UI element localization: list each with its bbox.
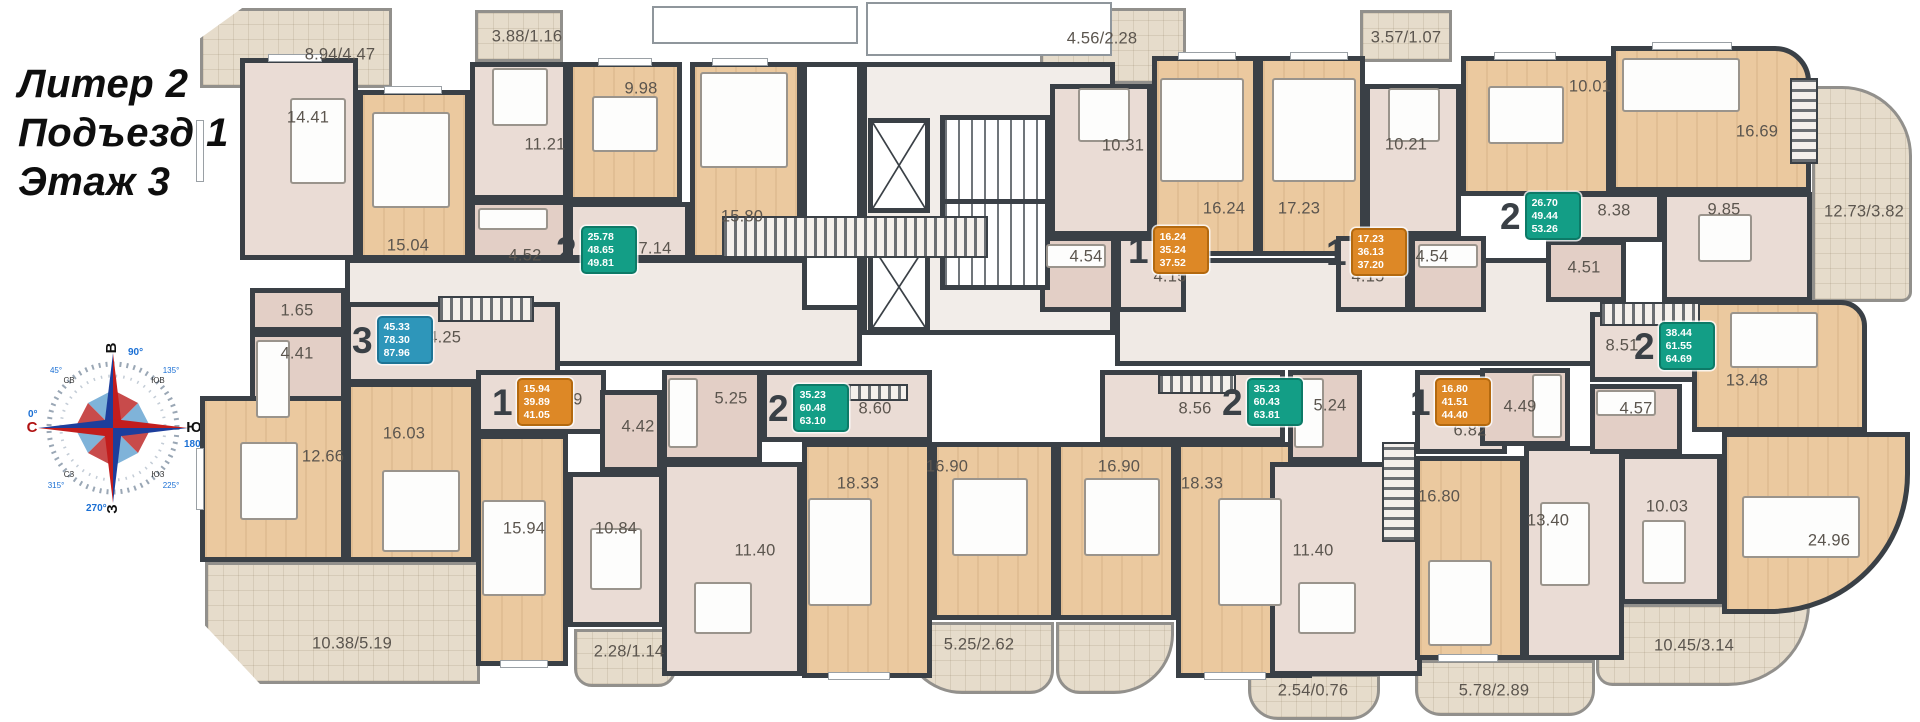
area-label: 5.25 bbox=[715, 390, 748, 409]
floor-plan: Литер 2 Подъезд 1 Этаж 3 В Ю З С 90° 180… bbox=[0, 0, 1920, 722]
area-label: 7.14 bbox=[639, 240, 672, 259]
apartment-rooms-count: 1 bbox=[1410, 384, 1431, 421]
area-label: 8.38 bbox=[1598, 202, 1631, 221]
area-label: 16.80 bbox=[1418, 488, 1460, 507]
apartment-badge-a9[interactable]: 2 35.23 60.43 63.81 bbox=[1222, 378, 1303, 426]
area-label: 10.21 bbox=[1385, 136, 1427, 155]
window bbox=[712, 58, 768, 66]
room bbox=[662, 462, 802, 676]
total-area-with-balcony: 63.81 bbox=[1254, 409, 1296, 422]
total-area: 60.48 bbox=[800, 402, 842, 415]
area-label: 10.01 bbox=[1569, 78, 1611, 97]
compass-south-label: Ю bbox=[186, 419, 200, 436]
total-area-with-balcony: 64.69 bbox=[1666, 353, 1708, 366]
apartment-areas: 17.23 36.13 37.20 bbox=[1351, 228, 1407, 276]
window bbox=[1438, 654, 1498, 662]
window bbox=[598, 58, 652, 66]
apartment-badge-a4[interactable]: 1 17.23 36.13 37.20 bbox=[1326, 228, 1407, 276]
area-label: 16.03 bbox=[383, 425, 425, 444]
apartment-badge-a6[interactable]: 2 38.44 61.55 64.69 bbox=[1634, 322, 1715, 370]
furniture bbox=[592, 96, 658, 152]
title-building: Литер 2 bbox=[18, 60, 229, 109]
total-area: 49.44 bbox=[1532, 210, 1574, 223]
title-floor: Этаж 3 bbox=[18, 158, 229, 207]
furniture bbox=[1388, 88, 1440, 142]
living-area: 26.70 bbox=[1532, 197, 1574, 210]
wardrobe bbox=[1382, 442, 1416, 542]
wardrobe bbox=[1790, 78, 1818, 164]
window bbox=[500, 660, 548, 668]
apartment-rooms-count: 2 bbox=[1222, 384, 1243, 421]
furniture bbox=[1428, 560, 1492, 646]
compass-270-label: 270° bbox=[86, 503, 107, 514]
compass-315-label: 315° bbox=[48, 481, 65, 490]
area-label: 9.85 bbox=[1708, 201, 1741, 220]
title-entrance: Подъезд 1 bbox=[18, 109, 229, 158]
apartment-areas: 45.33 78.30 87.96 bbox=[377, 316, 433, 364]
area-label: 2.28/1.14 bbox=[594, 643, 665, 662]
apartment-areas: 35.23 60.48 63.10 bbox=[793, 384, 849, 432]
terrace bbox=[1812, 86, 1912, 302]
furniture bbox=[1622, 58, 1740, 112]
furniture bbox=[1298, 582, 1356, 634]
area-label: 11.40 bbox=[1292, 542, 1333, 561]
area-label: 15.80 bbox=[721, 208, 763, 227]
window bbox=[384, 86, 442, 94]
total-area-with-balcony: 49.81 bbox=[588, 257, 630, 270]
area-label: 12.73/3.82 bbox=[1824, 203, 1904, 222]
area-label: 8.94/4.47 bbox=[305, 46, 376, 65]
total-area: 78.30 bbox=[384, 334, 426, 347]
living-area: 25.78 bbox=[588, 231, 630, 244]
apartment-rooms-count: 2 bbox=[1634, 328, 1655, 365]
apartment-badge-a10[interactable]: 1 16.80 41.51 44.40 bbox=[1410, 378, 1491, 426]
balcony bbox=[1056, 622, 1174, 694]
apartment-badge-a8[interactable]: 2 35.23 60.48 63.10 bbox=[768, 384, 849, 432]
area-label: 5.78/2.89 bbox=[1459, 682, 1530, 701]
total-area-with-balcony: 37.52 bbox=[1160, 257, 1202, 270]
living-area: 17.23 bbox=[1358, 233, 1400, 246]
living-area: 35.23 bbox=[1254, 383, 1296, 396]
area-label: 15.94 bbox=[503, 520, 545, 539]
area-label: 12.66 bbox=[302, 448, 344, 467]
apartment-areas: 16.24 35.24 37.52 bbox=[1153, 226, 1209, 274]
area-label: 10.84 bbox=[595, 520, 637, 539]
compass-135-label: 135° bbox=[163, 366, 180, 375]
apartment-rooms-count: 2 bbox=[768, 390, 789, 427]
living-area: 16.24 bbox=[1160, 231, 1202, 244]
total-area: 36.13 bbox=[1358, 246, 1400, 259]
furniture bbox=[1218, 498, 1282, 606]
area-label: 10.45/3.14 bbox=[1654, 637, 1734, 656]
living-area: 38.44 bbox=[1666, 327, 1708, 340]
total-area: 41.51 bbox=[1442, 396, 1484, 409]
elevator-shaft-1 bbox=[868, 118, 930, 213]
apartment-areas: 35.23 60.43 63.81 bbox=[1247, 378, 1303, 426]
area-label: 5.25/2.62 bbox=[944, 636, 1015, 655]
compass-rose: В Ю З С 90° 180° 270° 0° СВ ЮВ ЮЗ СЗ 45°… bbox=[26, 341, 200, 515]
area-label: 16.69 bbox=[1736, 123, 1778, 142]
area-label: 4.41 bbox=[281, 345, 314, 364]
furniture bbox=[694, 582, 752, 634]
area-label: 4.56/2.28 bbox=[1067, 30, 1138, 49]
total-area-with-balcony: 63.10 bbox=[800, 415, 842, 428]
plan-title: Литер 2 Подъезд 1 Этаж 3 bbox=[18, 60, 229, 207]
wardrobe bbox=[846, 384, 908, 401]
apartment-rooms-count: 2 bbox=[1500, 198, 1521, 235]
total-area: 35.24 bbox=[1160, 244, 1202, 257]
area-label: 10.38/5.19 bbox=[312, 635, 392, 654]
furniture bbox=[1272, 78, 1356, 182]
apartment-areas: 16.80 41.51 44.40 bbox=[1435, 378, 1491, 426]
canopy-outline bbox=[652, 6, 858, 44]
total-area-with-balcony: 41.05 bbox=[524, 409, 566, 422]
furniture bbox=[1084, 478, 1160, 556]
furniture bbox=[372, 112, 450, 208]
area-label: 8.56 bbox=[1179, 400, 1212, 419]
area-label: 17.23 bbox=[1278, 200, 1320, 219]
area-label: 1.65 bbox=[281, 302, 314, 321]
window bbox=[1204, 672, 1266, 680]
area-label: 11.40 bbox=[734, 542, 775, 561]
area-label: 8.60 bbox=[859, 400, 892, 419]
apartment-areas: 15.94 39.89 41.05 bbox=[517, 378, 573, 426]
living-area: 45.33 bbox=[384, 321, 426, 334]
compass-east-label: В bbox=[103, 342, 120, 353]
bathtub bbox=[478, 208, 548, 230]
total-area-with-balcony: 87.96 bbox=[384, 347, 426, 360]
total-area: 60.43 bbox=[1254, 396, 1296, 409]
total-area: 48.65 bbox=[588, 244, 630, 257]
compass-ne-label: СВ bbox=[63, 376, 74, 385]
area-label: 13.48 bbox=[1726, 372, 1768, 391]
area-label: 24.96 bbox=[1808, 532, 1850, 551]
area-label: 11.21 bbox=[524, 136, 565, 155]
apartment-badge-a7[interactable]: 1 15.94 39.89 41.05 bbox=[492, 378, 573, 426]
total-area-with-balcony: 37.20 bbox=[1358, 259, 1400, 272]
furniture bbox=[808, 498, 872, 606]
stairs bbox=[940, 115, 1050, 290]
area-label: 18.33 bbox=[1181, 475, 1223, 494]
furniture bbox=[1642, 520, 1686, 584]
furniture bbox=[240, 442, 298, 520]
apartment-areas: 26.70 49.44 53.26 bbox=[1525, 192, 1581, 240]
compass-225-label: 225° bbox=[163, 481, 180, 490]
total-area: 39.89 bbox=[524, 396, 566, 409]
area-label: 10.31 bbox=[1102, 137, 1144, 156]
living-area: 35.23 bbox=[800, 389, 842, 402]
area-label: 4.51 bbox=[1568, 259, 1601, 278]
compass-se-label: ЮВ bbox=[151, 376, 164, 385]
area-label: 13.40 bbox=[1527, 512, 1569, 531]
apartment-badge-a1[interactable]: 2 25.78 48.65 49.81 bbox=[556, 226, 637, 274]
bathtub bbox=[1532, 374, 1562, 438]
area-label: 5.24 bbox=[1314, 397, 1347, 416]
compass-nw-label: СЗ bbox=[64, 470, 75, 479]
area-label: 9.98 bbox=[625, 80, 658, 99]
furniture bbox=[1730, 312, 1818, 368]
apartment-badge-a5[interactable]: 2 26.70 49.44 53.26 bbox=[1500, 192, 1581, 240]
area-label: 4.52 bbox=[509, 247, 542, 266]
compass-180-label: 180° bbox=[184, 439, 200, 450]
apartment-rooms-count: 1 bbox=[1128, 232, 1149, 269]
apartment-rooms-count: 1 bbox=[1326, 234, 1347, 271]
total-area: 61.55 bbox=[1666, 340, 1708, 353]
compass-sw-label: ЮЗ bbox=[152, 470, 165, 479]
total-area-with-balcony: 44.40 bbox=[1442, 409, 1484, 422]
furniture bbox=[1160, 78, 1244, 182]
furniture bbox=[482, 500, 546, 596]
furniture bbox=[952, 478, 1028, 556]
living-area: 15.94 bbox=[524, 383, 566, 396]
window bbox=[1494, 52, 1556, 60]
area-label: 3.88/1.16 bbox=[492, 28, 563, 47]
apartment-rooms-count: 2 bbox=[556, 232, 577, 269]
wardrobe bbox=[438, 296, 534, 322]
bathtub bbox=[668, 378, 698, 448]
area-label: 16.90 bbox=[926, 458, 968, 477]
area-label: 4.57 bbox=[1620, 400, 1653, 419]
area-label: 16.90 bbox=[1098, 458, 1140, 477]
apartment-areas: 25.78 48.65 49.81 bbox=[581, 226, 637, 274]
furniture bbox=[382, 470, 460, 552]
furniture bbox=[1488, 86, 1564, 144]
apartment-areas: 38.44 61.55 64.69 bbox=[1659, 322, 1715, 370]
window bbox=[1290, 52, 1348, 60]
area-label: 18.33 bbox=[837, 475, 879, 494]
apartment-badge-a2[interactable]: 3 45.33 78.30 87.96 bbox=[352, 316, 433, 364]
living-area: 16.80 bbox=[1442, 383, 1484, 396]
area-label: 4.49 bbox=[1504, 398, 1537, 417]
window bbox=[1652, 42, 1732, 50]
total-area-with-balcony: 53.26 bbox=[1532, 223, 1574, 236]
furniture bbox=[700, 72, 788, 168]
vestibule bbox=[802, 62, 862, 310]
area-label: 16.24 bbox=[1203, 200, 1245, 219]
compass-45-label: 45° bbox=[50, 366, 62, 375]
apartment-rooms-count: 3 bbox=[352, 322, 373, 359]
area-label: 10.03 bbox=[1646, 498, 1688, 517]
furniture bbox=[1078, 88, 1130, 142]
area-label: 14.41 bbox=[287, 109, 329, 128]
apartment-rooms-count: 1 bbox=[492, 384, 513, 421]
furniture bbox=[492, 68, 548, 126]
compass-90-label: 90° bbox=[128, 347, 143, 358]
area-label: 2.54/0.76 bbox=[1278, 682, 1349, 701]
balcony bbox=[205, 562, 480, 684]
window bbox=[1178, 52, 1236, 60]
furniture bbox=[1698, 214, 1752, 262]
area-label: 4.42 bbox=[622, 418, 655, 437]
area-label: 4.54 bbox=[1070, 248, 1103, 267]
compass-north-label: С bbox=[27, 419, 38, 436]
area-label: 3.57/1.07 bbox=[1371, 29, 1442, 48]
area-label: 4.54 bbox=[1416, 248, 1449, 267]
area-label: 15.04 bbox=[387, 237, 429, 256]
apartment-badge-a3[interactable]: 1 16.24 35.24 37.52 bbox=[1128, 226, 1209, 274]
compass-0-label: 0° bbox=[28, 409, 38, 420]
window bbox=[828, 672, 890, 680]
